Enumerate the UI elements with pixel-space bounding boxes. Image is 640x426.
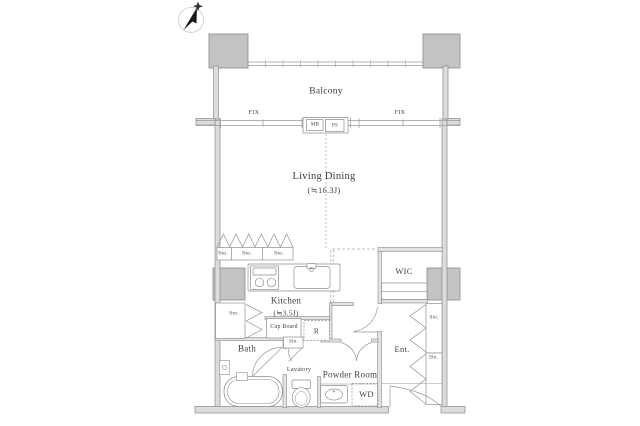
window-stub-left [196, 119, 215, 126]
wic-interior [382, 283, 428, 300]
window-stub-right [447, 119, 460, 126]
lavatory-powder-wall [318, 377, 321, 408]
storage-left-cabinet [216, 303, 246, 339]
sto-left-cabinet-label: Sto. [229, 311, 239, 317]
hall-door [353, 307, 378, 332]
folding-door [410, 379, 426, 404]
sto-ent-lower-label: Sto. [429, 355, 438, 360]
sto-kitchen-1-label: Sto. [218, 251, 228, 257]
wd-label: WD [359, 389, 374, 398]
bottom-wall [195, 407, 389, 414]
bathtub-faucet [237, 373, 248, 381]
sto-kitchen-3-label: Sto. [274, 251, 284, 257]
pillar-top-right [423, 34, 460, 68]
balcony-left-wall [214, 66, 219, 120]
hall-left-wall [330, 303, 333, 339]
sink [294, 267, 330, 289]
kitchen-label: Kitchen [271, 297, 301, 306]
lavatory-door [289, 348, 303, 362]
bath-lavatory-wall-lower [283, 375, 287, 408]
powder-top-wall-right [372, 339, 379, 342]
powder-room-label: Powder Room [323, 370, 378, 379]
folding-door-zigzag [217, 234, 293, 247]
refrigerator-label: R [314, 327, 319, 335]
ps-label: PS [332, 123, 338, 128]
fix-right-label: FIX [395, 110, 405, 116]
balcony-railing [248, 61, 423, 68]
balcony-right-wall [443, 66, 448, 120]
bath-door [253, 348, 283, 378]
floor-plan-drawing [0, 0, 640, 426]
wic-label: WIC [395, 266, 412, 275]
kitchen-counter [248, 264, 340, 292]
fix-left-label: FIX [249, 110, 259, 116]
sto-hall-label: Sto. [289, 340, 298, 345]
right-wall [442, 119, 447, 410]
wic-left-wall [378, 252, 382, 304]
folding-door [410, 328, 426, 352]
bath-counter [220, 361, 230, 375]
ent-label: Ent. [395, 344, 410, 353]
folding-door [246, 305, 262, 322]
folding-door [246, 321, 262, 338]
kitchen-size-label: (≒3.5J) [273, 309, 298, 317]
lavatory-label: Lavatory [287, 366, 311, 372]
cup-board-label: Cup Board [270, 325, 298, 331]
living-dining-size-label: (≒16.3J) [308, 186, 341, 195]
folding-door [410, 354, 426, 379]
utility-boxes [303, 118, 348, 134]
sto-kitchen-2-label: Sto. [242, 251, 252, 257]
hall-top-wall [330, 303, 354, 306]
folding-door [410, 305, 426, 329]
pillar-top-left [209, 34, 248, 68]
living-dining-label: Living Dining [292, 172, 355, 183]
wic-top-wall [378, 248, 443, 252]
sto-ent-upper-label: Sto. [430, 316, 439, 321]
wic-bottom-wall [382, 300, 428, 304]
bath-fixtures [220, 361, 283, 407]
lavatory-fixtures [292, 380, 311, 407]
north-arrow-icon [179, 2, 204, 33]
toilet-tank [292, 380, 311, 389]
bottom-wall-right-stub [441, 407, 465, 414]
mb-label: MB [311, 123, 319, 128]
powder-room-double-door [341, 343, 372, 362]
storage-ent-upper [426, 304, 442, 354]
floor-plan: Balcony FIX FIX MB PS Living Dining (≒16… [0, 0, 640, 426]
storage-ent-lower [426, 353, 442, 405]
bath-label: Bath [238, 344, 256, 353]
balcony-label: Balcony [309, 87, 342, 97]
